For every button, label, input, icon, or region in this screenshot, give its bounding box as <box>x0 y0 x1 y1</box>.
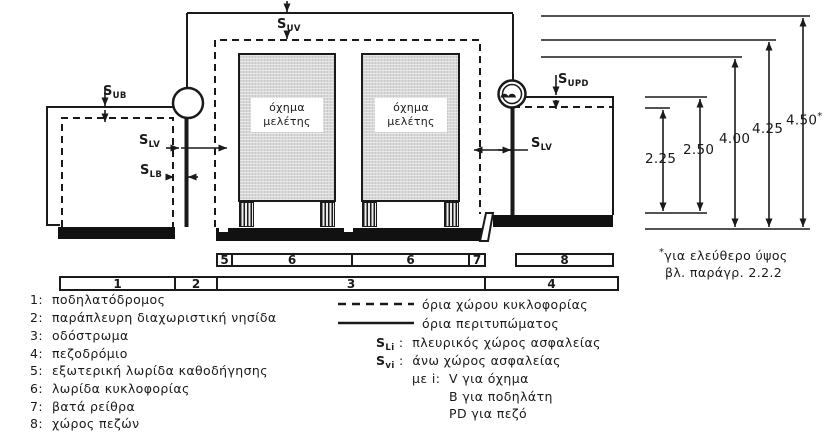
vehicle-left-label: όχημα μελέτης <box>251 98 323 132</box>
legend-index-vehicle: V για όχημα <box>449 371 529 386</box>
pedestrian-sign-disc <box>499 81 526 108</box>
vehicle-left-wheel-left <box>239 202 254 227</box>
legend-zone-5: 5:εξωτερική λωρίδα καθοδήγησης <box>30 363 268 378</box>
zone-box-3: 3 <box>216 276 486 291</box>
zone-box-4: 4 <box>484 276 619 291</box>
vehicle-right-wheel-left <box>362 202 377 227</box>
vehicle-left-label-line2: μελέτης <box>263 115 311 129</box>
pedestrian-sign-glyph <box>501 94 517 98</box>
slb-label: SLB <box>140 163 162 180</box>
zone-box-7: 7 <box>468 253 486 267</box>
cross-section-diagram: όχημα μελέτης όχημα μελέτης <box>0 0 833 441</box>
sub-label: SUB <box>103 84 127 101</box>
dim-value-425: 4.25 <box>752 121 783 137</box>
slv-right-label: SLV <box>531 136 552 153</box>
dim-value-225: 2.25 <box>645 151 676 167</box>
legend-zone-1: 1:ποδηλατόδρομος <box>30 292 165 307</box>
vehicle-right-wheel-right <box>444 202 459 227</box>
zone-box-6b: 6 <box>351 253 470 267</box>
free-height-note-line2: βλ. παράγρ. 2.2.2 <box>659 264 788 281</box>
legend-zone-6: 6:λωρίδα κυκλοφορίας <box>30 381 190 396</box>
free-height-note-line1: *για ελεύθερο ύψος <box>659 244 788 264</box>
legend-zone-7: 7:βατά ρείθρα <box>30 399 135 414</box>
legend-zone-4: 4:πεζοδρόμιο <box>30 346 128 361</box>
dim-value-400: 4.00 <box>719 131 750 147</box>
bike-envelope-outline <box>47 107 186 225</box>
legend-zone-2: 2:παράπλευρη διαχωριστική νησίδα <box>30 310 277 325</box>
supd-label: SUPD <box>558 72 589 89</box>
sidewalk-surface <box>493 215 613 227</box>
vehicle-right-label: όχημα μελέτης <box>375 98 447 132</box>
vehicle-right-label-line2: μελέτης <box>387 115 435 129</box>
legend-envelope-limits: όρια περιτυπώματος <box>422 316 559 331</box>
legend-traffic-space-limits: όρια χώρου κυκλοφορίας <box>422 297 588 312</box>
zone-box-8: 8 <box>515 253 614 267</box>
free-height-note: *για ελεύθερο ύψος βλ. παράγρ. 2.2.2 <box>659 244 788 281</box>
vehicle-right-label-line1: όχημα <box>393 101 429 115</box>
pedestrian-sign-inner-ring <box>503 85 522 104</box>
legend-index-prefix: με i: <box>412 371 440 386</box>
zone-box-6a: 6 <box>231 253 353 267</box>
dim-value-450: 4.50* <box>786 111 823 129</box>
vehicle-left-wheel-right <box>320 202 335 227</box>
legend-index-pedestrian: PD για πεζό <box>449 406 527 421</box>
suv-label: SUV <box>277 17 301 34</box>
slv-left-label: SLV <box>139 133 160 150</box>
legend-svi: Svi : άνω χώρος ασφαλείας <box>376 353 561 371</box>
legend-sli: SLi : πλευρικός χώρος ασφαλείας <box>376 335 601 353</box>
legend-zone-8: 8:χώρος πεζών <box>30 416 140 431</box>
guidance-strip-mark-left <box>219 228 228 232</box>
legend-index-bike: B για ποδηλάτη <box>449 389 553 404</box>
legend-zone-3: 3:οδόστρωμα <box>30 328 129 343</box>
zone-box-2: 2 <box>174 276 218 291</box>
vehicle-left-label-line1: όχημα <box>269 101 305 115</box>
dim-value-250: 2.50 <box>683 142 714 158</box>
pedestrian-envelope-outline <box>513 97 613 215</box>
zone-box-1: 1 <box>59 276 176 291</box>
guidance-strip-mark-center <box>344 228 353 232</box>
bike-sign-disc <box>173 88 203 118</box>
bike-path-surface <box>58 227 175 239</box>
